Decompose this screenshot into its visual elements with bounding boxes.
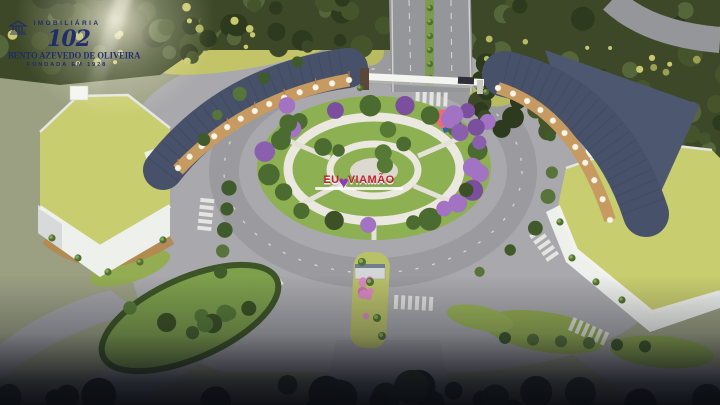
highway-median	[425, 0, 434, 86]
gate-sign	[458, 77, 474, 85]
logo-company-name: BENTO AZEVEDO DE OLIVEIRA	[8, 51, 126, 62]
aerial-development-render: IMOBILIÁRIA 102 BENTO AZEVEDO DE OLIVEIR…	[0, 0, 720, 405]
logo-number: 102	[47, 28, 90, 50]
logo-founded-line: FUNDADA EM 1928	[8, 62, 126, 69]
developer-logo-watermark: IMOBILIÁRIA 102 BENTO AZEVEDO DE OLIVEIR…	[8, 20, 126, 69]
